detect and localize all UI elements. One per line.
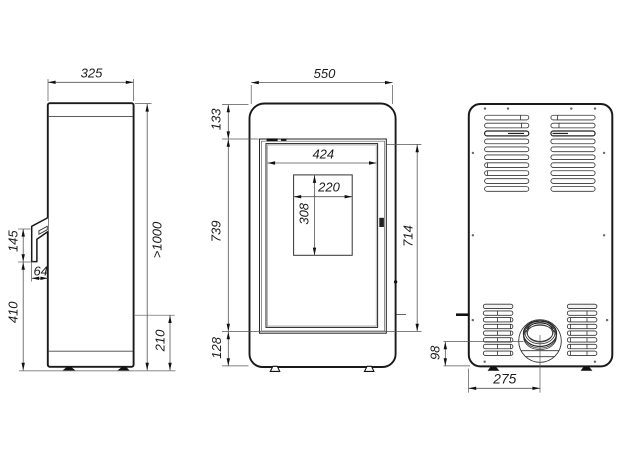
svg-text:550: 550 <box>314 66 336 81</box>
svg-text:128: 128 <box>209 336 224 358</box>
svg-text:64: 64 <box>33 264 47 279</box>
svg-text:>1000: >1000 <box>150 221 165 258</box>
svg-text:133: 133 <box>208 108 223 130</box>
svg-text:275: 275 <box>492 372 516 387</box>
svg-text:325: 325 <box>81 65 103 80</box>
svg-text:308: 308 <box>297 202 312 224</box>
svg-text:410: 410 <box>6 301 21 323</box>
svg-text:714: 714 <box>401 225 416 247</box>
svg-text:98: 98 <box>427 345 442 360</box>
svg-text:220: 220 <box>317 179 340 194</box>
svg-text:145: 145 <box>6 230 21 252</box>
svg-text:210: 210 <box>153 329 168 352</box>
svg-text:424: 424 <box>312 147 334 162</box>
svg-text:739: 739 <box>208 221 223 243</box>
